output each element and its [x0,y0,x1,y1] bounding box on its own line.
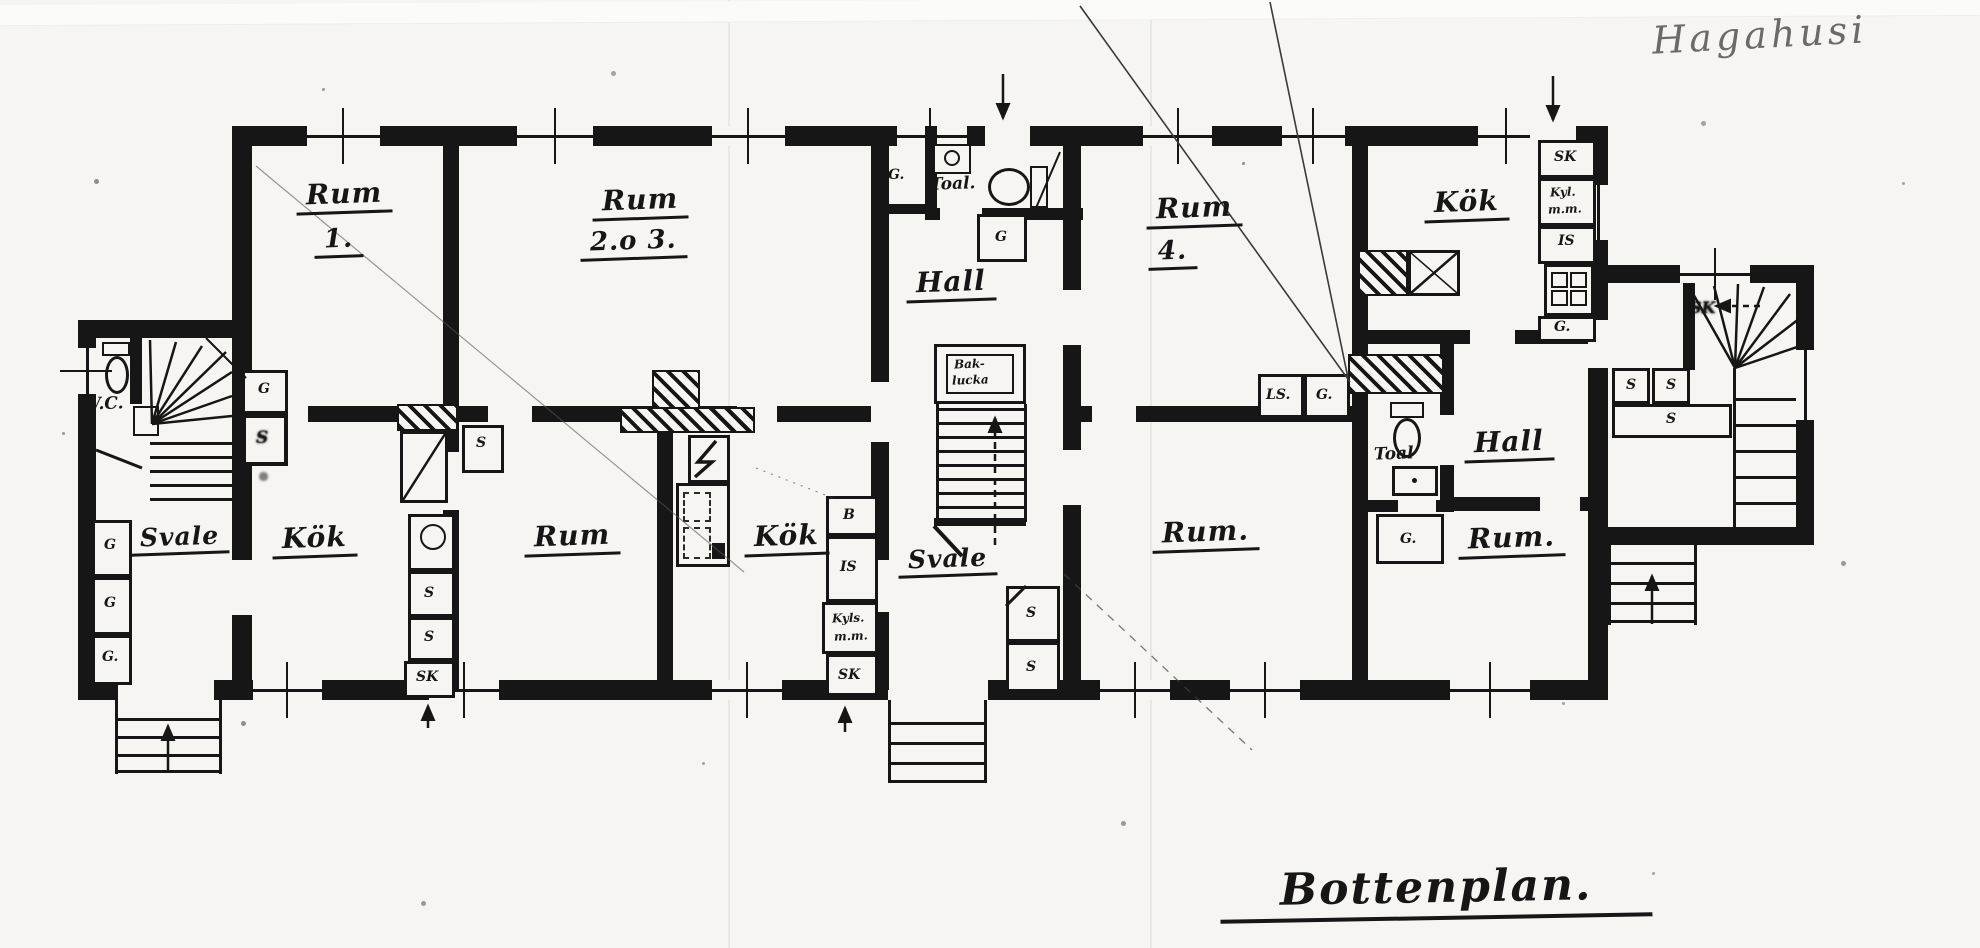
door-gap [118,680,214,700]
room-label-rum23: Rum [591,184,688,221]
room-number-23: 2.o 3. [579,226,687,262]
wall [934,518,1026,526]
room-label-toal-right: Toal [1374,445,1414,463]
stair-tread [150,456,232,459]
wall [1608,527,1814,545]
step [1608,620,1697,623]
hatch-door-label: Bak- [954,357,985,370]
room-label-rum-bottom: Rum. [1151,516,1259,554]
handwritten-title: Hagahusi [1651,10,1868,59]
sink-drain [1412,478,1417,483]
stair-rail [1024,404,1027,522]
closet-label-is: IS [840,560,857,574]
closet-label-ls: LS. [1266,388,1290,402]
chimney-hatch [620,407,755,433]
room-label-hall-right: Hall [1463,426,1554,463]
closet-label-s: S [424,630,434,644]
step [888,722,987,725]
steps-rail [888,700,891,782]
closet-label-sk: SK [416,670,438,684]
stair-tread [939,478,1024,481]
toilet-icon [988,168,1030,206]
window [1450,680,1530,700]
wall [871,126,889,382]
wall [1352,330,1470,344]
stair-tread [1736,476,1796,479]
chimney-hatch [1348,354,1444,394]
stair-tread [150,484,232,487]
step [1608,562,1697,565]
closet-label-s: S [1666,412,1676,426]
window [712,126,785,146]
wall [925,208,940,220]
window [712,680,782,700]
door-leaf [96,450,142,468]
wall [1063,505,1081,690]
wall [1352,500,1398,512]
closet-label-kyl: m.m. [1548,202,1582,215]
room-label-kok-mid: Kök [743,521,829,558]
sink-icon [944,150,960,166]
floor-plan-sheet: Rum 1. Rum 2.o 3. Hall Rum 4. Kök Svale … [0,0,1980,948]
hatch-door-label: lucka [952,373,989,386]
counter-compartment [683,492,711,522]
closet-label-s: S [1626,378,1636,392]
wall [130,338,142,404]
step [115,770,222,773]
room-label-rum-right: Rum. [1457,522,1565,560]
wall [777,406,871,422]
toilet-tank-icon [102,342,130,356]
closet-label-g: G [104,596,116,610]
closet-label-kyls: m.m. [834,629,868,642]
room-label-hall-center: Hall [905,266,996,303]
stair-tread [1736,398,1796,401]
window [517,126,593,146]
stair-tread [939,450,1024,453]
wall [657,422,673,690]
closet-label-sk: SK [1690,300,1715,316]
step [115,736,222,739]
closet-label-s: S [1666,378,1676,392]
stair-tread [150,498,232,501]
closet-label-s: S [1026,606,1036,620]
paper-speckles [0,0,3,3]
window [1100,680,1170,700]
wall [1063,345,1081,450]
stove-burner [1551,272,1568,288]
wall [1440,497,1540,511]
room-label-wc: W.C. [82,395,124,413]
stair-fan [1692,284,1812,368]
stair-fan [150,340,232,424]
room-label-kok-right: Kök [1423,187,1509,224]
closet-label-g: G. [888,168,904,182]
step [115,754,222,757]
stair-post [133,406,159,436]
closet-label-g: G [104,538,116,552]
closet-label-s: S [256,430,268,447]
steps-rail [1694,545,1697,625]
room-label-svale-left: Svale [129,522,229,556]
window [1478,126,1535,146]
closet-label-s: S [476,436,486,450]
pencil-dashed-line [1064,574,1252,750]
window [1680,265,1750,283]
stair-tread [939,408,1024,411]
stair-tread [939,436,1024,439]
chimney-hatch [1358,250,1408,296]
step [1608,602,1697,605]
leader-line [1270,2,1348,378]
chimney-hatch [397,404,458,431]
stove-burner [1570,272,1587,288]
stair-tread [939,506,1024,509]
closet-label-g: G [258,382,270,396]
stove-icon [688,435,730,483]
closet-label-g: G. [1316,388,1332,402]
closet-label-sk: SK [838,668,860,682]
wall [459,406,488,422]
room-number-1: 1. [313,225,363,259]
window [253,680,322,700]
steps-rail [984,700,987,782]
door-gap [232,560,252,615]
closet-label-is: IS [1558,234,1575,248]
stair-tread [1736,424,1796,427]
stove-burner [1551,290,1568,306]
cabinet-box [400,431,448,503]
sink-icon [420,524,446,550]
toilet-icon [105,356,129,394]
window [78,348,96,394]
room-label-kok-left: Kök [271,523,357,560]
steps-rail [1608,545,1611,625]
room-number-4: 4. [1147,237,1197,271]
closet-label-sk: SK [1554,150,1576,164]
stair-tread [939,422,1024,425]
counter-compartment [683,527,711,559]
step [888,762,987,765]
window [307,126,380,146]
room-label-rum-mid: Rum [523,520,620,557]
closet-label-kyls: Kyls. [832,611,865,624]
stair-tread [1736,502,1796,505]
entry-door-gap [985,126,1030,146]
room-label-rum1: Rum [295,178,392,215]
wall [1580,497,1588,511]
closet-label-g: G [995,230,1007,244]
stair-tread [1736,450,1796,453]
closet-label-g: G. [102,650,118,664]
window [1282,126,1345,146]
stair-tread [939,464,1024,467]
toilet-tank-icon [1030,166,1048,208]
toilet-tank-icon [1390,402,1424,418]
counter-detail [712,543,725,559]
window [1143,126,1212,146]
stair-tread [150,442,232,445]
room-label-rum4: Rum [1145,192,1242,229]
wall [1683,283,1695,370]
closet-label-kyl: Kyl. [1550,186,1576,199]
step [115,718,222,721]
closet-label-s: S [1026,660,1036,674]
stove-burner [1570,290,1587,306]
closet-label-s: S [424,586,434,600]
stair-tread [939,492,1024,495]
door-gap [888,680,988,700]
step [888,742,987,745]
range-box [1408,250,1460,296]
step [888,780,987,783]
closet-label-g: G. [1400,532,1416,546]
wall [1081,406,1092,422]
wall [1352,126,1368,700]
window [1796,350,1814,420]
room-label-toal-top: Toal. [930,175,976,194]
window [1230,680,1300,700]
step [1608,582,1697,585]
wall [78,320,232,338]
stair-tread [150,470,232,473]
closet-label-g: G. [1554,320,1570,334]
chimney-hatch [652,370,700,409]
closet-label-b: B [843,508,855,522]
plan-caption: Bottenplan. [1220,862,1653,924]
room-label-svale-center: Svale [897,544,997,578]
